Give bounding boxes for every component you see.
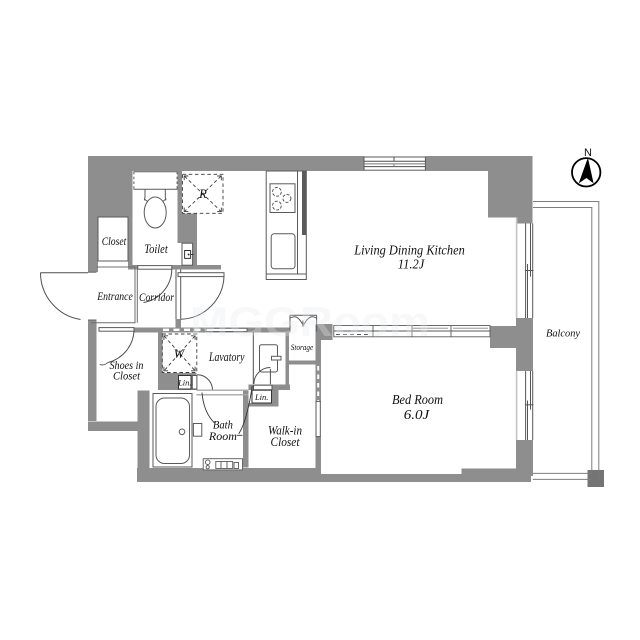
svg-text:R: R [198, 187, 207, 201]
svg-text:Corridor: Corridor [139, 292, 174, 304]
svg-text:Balcony: Balcony [546, 329, 580, 340]
svg-text:Toilet: Toilet [144, 242, 168, 256]
svg-text:Entrance: Entrance [96, 291, 132, 303]
svg-text:Bath: Bath [213, 420, 233, 432]
svg-text:W: W [174, 347, 186, 361]
svg-text:MGGRoom: MGGRoom [190, 298, 430, 345]
svg-text:Closet: Closet [102, 236, 127, 248]
svg-text:Closet: Closet [271, 435, 300, 449]
svg-text:6.0J: 6.0J [404, 407, 431, 422]
svg-text:Lin.: Lin. [177, 378, 191, 388]
svg-text:Room: Room [208, 431, 237, 443]
svg-text:Closet: Closet [113, 371, 141, 383]
svg-text:Lin.: Lin. [254, 392, 268, 402]
svg-text:Living Dining Kitchen: Living Dining Kitchen [353, 243, 465, 258]
svg-text:Storage: Storage [291, 343, 314, 352]
svg-text:N: N [584, 147, 592, 159]
svg-text:Bed Room: Bed Room [392, 392, 443, 407]
svg-text:Lavatory: Lavatory [208, 350, 245, 364]
svg-text:11.2J: 11.2J [398, 257, 425, 272]
